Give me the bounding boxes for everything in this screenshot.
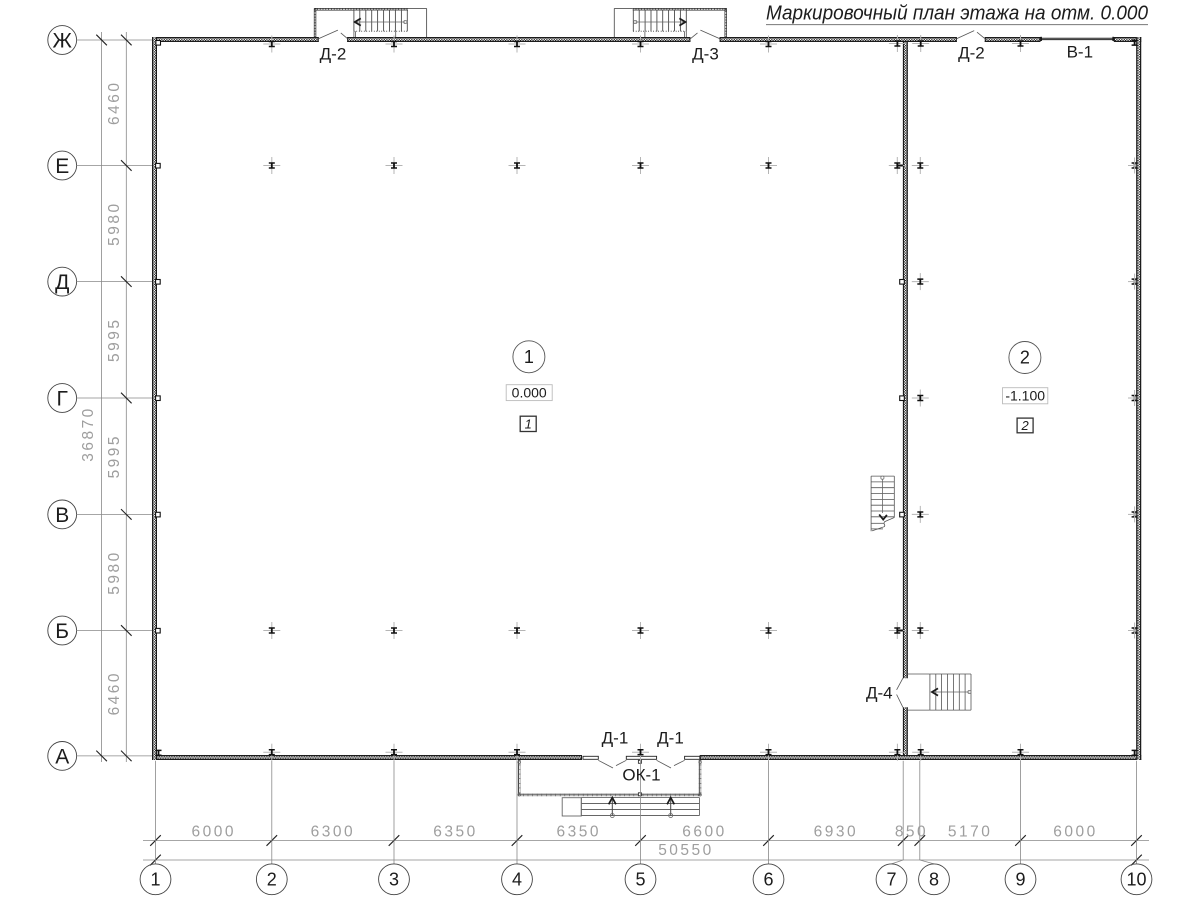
svg-text:6600: 6600 (682, 823, 726, 840)
svg-text:Д: Д (55, 271, 69, 294)
svg-text:7: 7 (886, 870, 896, 890)
svg-text:6930: 6930 (814, 823, 858, 840)
svg-text:5: 5 (635, 870, 645, 890)
svg-text:Е: Е (55, 155, 69, 178)
svg-text:0.000: 0.000 (512, 384, 547, 400)
svg-text:6000: 6000 (191, 823, 235, 840)
svg-text:ОК-1: ОК-1 (622, 766, 660, 785)
svg-text:5995: 5995 (106, 434, 123, 478)
svg-text:850: 850 (895, 823, 928, 840)
svg-text:50550: 50550 (658, 842, 714, 859)
svg-text:Д-2: Д-2 (320, 45, 347, 64)
svg-text:В: В (55, 504, 69, 527)
svg-text:6: 6 (763, 870, 773, 890)
svg-text:5980: 5980 (106, 201, 123, 245)
svg-text:Г: Г (57, 387, 68, 410)
svg-text:8: 8 (929, 870, 939, 890)
svg-text:Д-2: Д-2 (958, 44, 985, 63)
svg-text:Д-3: Д-3 (692, 45, 719, 64)
svg-text:Д-1: Д-1 (602, 729, 629, 748)
svg-text:1: 1 (525, 417, 532, 432)
svg-text:6350: 6350 (433, 823, 477, 840)
svg-text:6300: 6300 (311, 823, 355, 840)
svg-text:2: 2 (1020, 348, 1030, 368)
svg-text:1: 1 (150, 870, 160, 890)
svg-text:5995: 5995 (106, 318, 123, 362)
svg-text:6000: 6000 (1053, 823, 1097, 840)
svg-text:9: 9 (1015, 870, 1025, 890)
svg-text:6350: 6350 (557, 823, 601, 840)
svg-text:36870: 36870 (80, 406, 97, 462)
svg-text:6460: 6460 (106, 81, 123, 125)
svg-text:-1.100: -1.100 (1005, 387, 1045, 403)
svg-text:5170: 5170 (948, 823, 992, 840)
svg-text:В-1: В-1 (1067, 43, 1093, 62)
svg-text:5980: 5980 (106, 550, 123, 594)
svg-text:Маркировочный план этажа на от: Маркировочный план этажа на отм. 0.000 (766, 3, 1148, 25)
svg-text:А: А (55, 745, 69, 768)
svg-text:6460: 6460 (106, 671, 123, 715)
svg-text:Ж: Ж (53, 29, 73, 52)
svg-text:2: 2 (267, 870, 277, 890)
svg-text:3: 3 (389, 870, 399, 890)
svg-text:Д-1: Д-1 (657, 729, 684, 748)
svg-text:10: 10 (1126, 870, 1146, 890)
svg-text:Д-4: Д-4 (866, 684, 893, 703)
svg-text:2: 2 (1020, 418, 1029, 433)
svg-text:4: 4 (512, 870, 522, 890)
svg-text:1: 1 (524, 347, 534, 367)
svg-text:Б: Б (55, 620, 69, 643)
